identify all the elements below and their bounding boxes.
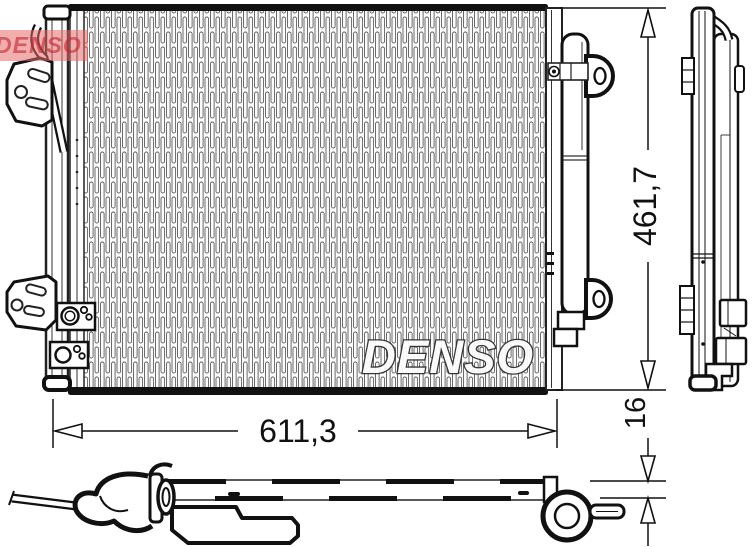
side-view-bottom-cap [690,376,716,390]
bracket-hole-round-top [15,86,27,98]
side-view [680,8,746,390]
bottom-view-foot-bracket [172,507,298,543]
bottom-view [9,464,624,543]
side-view-clamp-top [682,58,694,94]
technical-drawing-canvas: DENSO 461,7 611,3 16 [0,0,752,547]
height-dimension-label: 461,7 [627,166,663,246]
thickness-dimension-label: 16 [620,397,652,429]
tube-cap-bottom [44,377,70,390]
dimension-thickness: 16 [590,397,666,546]
denso-logo-text: DENSO [0,32,88,59]
dimension-width: 611,3 [53,399,557,449]
bottom-header-bar [68,387,548,395]
side-view-tab [735,66,744,92]
port-lower-large [56,348,71,363]
top-header-bar [68,4,548,11]
tank-foot-upper [558,312,584,329]
side-view-port-lower [716,338,746,364]
bottom-view-elbow [75,474,152,531]
tab-hole-top [595,68,606,84]
condenser-technical-drawing: DENSO 461,7 611,3 16 [0,0,752,547]
denso-watermark: DENSO [362,330,534,383]
denso-logo-stamp: DENSO [0,30,88,61]
bracket-hole-round-bottom [12,300,23,311]
side-view-port-upper [720,300,746,326]
tube-cap-top [44,6,70,19]
side-view-tank-edge [692,8,714,388]
mounting-bracket-top-left [7,58,52,126]
tank-foot-lower [554,329,577,346]
tab-hole-bottom [594,291,605,307]
front-view: DENSO [7,4,613,395]
width-dimension-label: 611,3 [259,413,337,449]
